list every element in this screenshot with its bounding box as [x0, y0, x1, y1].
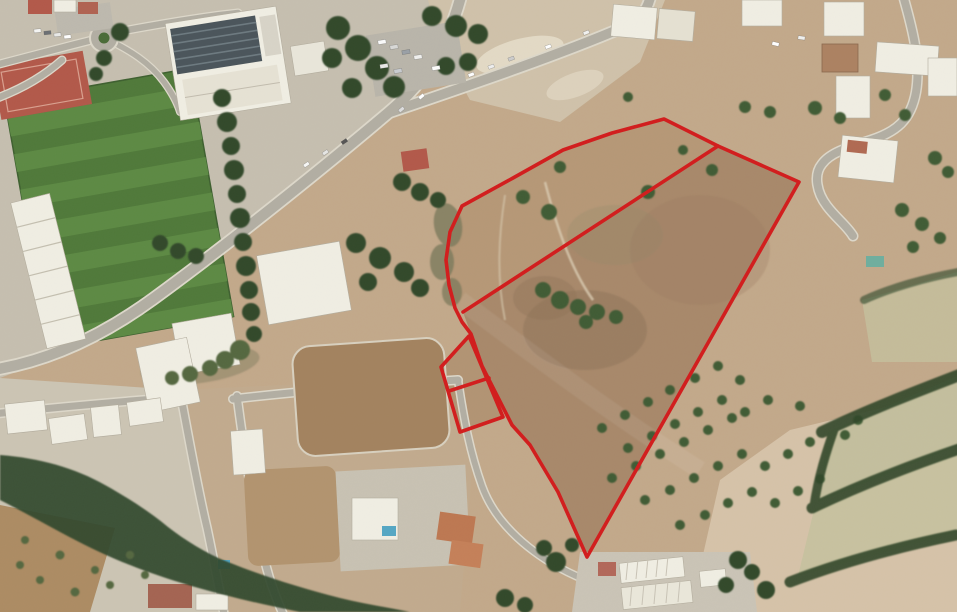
satellite-map [0, 0, 957, 612]
photo-grain [0, 0, 957, 612]
satellite-image [0, 0, 957, 612]
